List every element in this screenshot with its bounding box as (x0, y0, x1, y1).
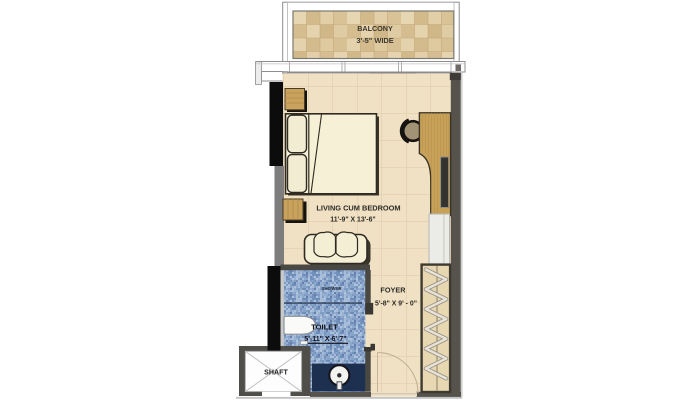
svg-text:5'-11" X 6'-7": 5'-11" X 6'-7" (304, 336, 346, 343)
svg-text:BALCONY: BALCONY (357, 24, 393, 33)
svg-text:3'-5" WIDE: 3'-5" WIDE (356, 36, 393, 45)
svg-text:FOYER: FOYER (380, 286, 406, 295)
svg-text:TOILET: TOILET (311, 323, 338, 332)
svg-text:LIVING CUM BEDROOM: LIVING CUM BEDROOM (316, 204, 400, 213)
svg-text:SHAFT: SHAFT (264, 369, 288, 377)
svg-text:11'-9" X 13'-6": 11'-9" X 13'-6" (330, 217, 375, 224)
svg-text:SHOWER: SHOWER (321, 286, 342, 291)
svg-text:5'-8" X 9' - 0": 5'-8" X 9' - 0" (375, 301, 417, 308)
